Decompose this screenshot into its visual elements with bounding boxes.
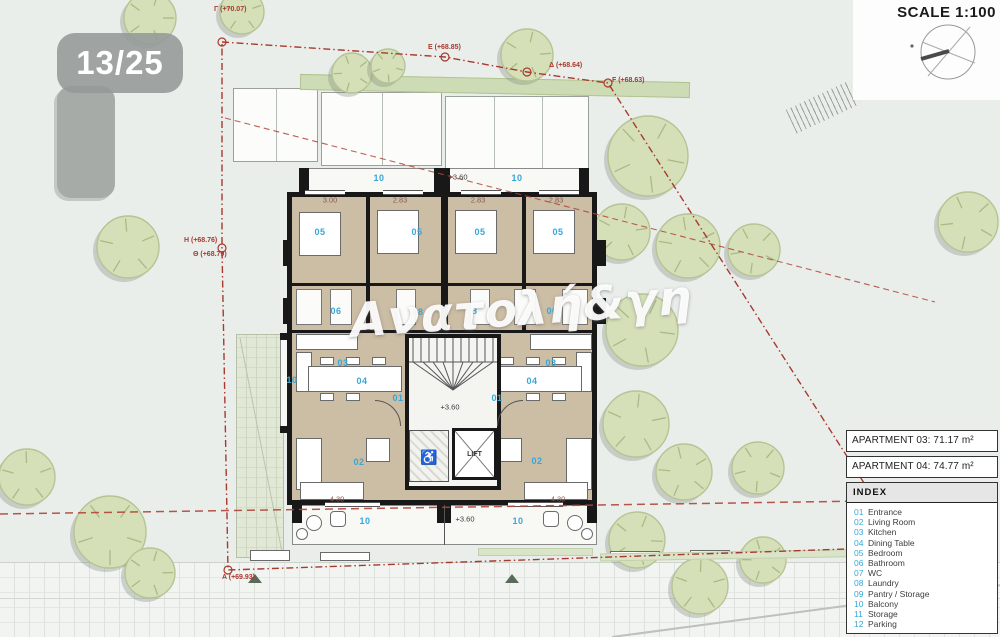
- neighbor-plot: [233, 88, 318, 162]
- bed: [377, 210, 419, 254]
- street-tree-icon: [505, 574, 519, 583]
- wall-stub: [579, 168, 589, 194]
- kitchen-counter: [530, 334, 592, 350]
- index-item-number: 05: [854, 548, 868, 558]
- street-tree-icon: [248, 574, 262, 583]
- tree: [608, 116, 688, 196]
- index-item-label: Dining Table: [868, 538, 915, 548]
- index-item: 06Bathroom: [854, 558, 997, 568]
- index-item-number: 10: [854, 599, 868, 609]
- index-item-label: Laundry: [868, 578, 899, 588]
- chair: [346, 393, 360, 401]
- pier: [283, 298, 292, 324]
- planting-strip: [478, 548, 593, 556]
- chair: [320, 357, 334, 365]
- index-item-label: Pantry / Storage: [868, 589, 929, 599]
- apartment-area-03: APARTMENT 03: 71.17 m²: [846, 430, 998, 452]
- bed: [455, 210, 497, 254]
- floor-plan-sheet: LIFT ♿ 050505050608080603030404010102021…: [0, 0, 1000, 637]
- index-item: 11Storage: [854, 609, 997, 619]
- index-item-label: Parking: [868, 619, 897, 629]
- index-item-number: 09: [854, 589, 868, 599]
- bathroom-fixture: [296, 289, 322, 325]
- armchair: [498, 438, 522, 462]
- scale-label: SCALE 1:100: [858, 4, 996, 21]
- index-item: 01Entrance: [854, 507, 997, 517]
- blabel: Δ (+68.64): [549, 62, 582, 69]
- neighbor-plot: [321, 92, 442, 166]
- planter: [320, 552, 370, 561]
- staircase: [409, 338, 497, 394]
- index-item: 05Bedroom: [854, 548, 997, 558]
- index-item-number: 02: [854, 517, 868, 527]
- balcony-table: [543, 511, 559, 527]
- legend-panel: APARTMENT 03: 71.17 m² APARTMENT 04: 74.…: [846, 430, 998, 634]
- index-item-number: 07: [854, 568, 868, 578]
- index-box: INDEX 01Entrance02Living Room03Kitchen04…: [846, 482, 998, 634]
- kitchen-counter: [296, 334, 358, 350]
- bed: [533, 210, 575, 254]
- apartment-area-04: APARTMENT 04: 74.77 m²: [846, 456, 998, 478]
- wall-stub: [292, 505, 302, 523]
- index-item-label: Balcony: [868, 599, 898, 609]
- wheelchair-icon: ♿: [409, 430, 449, 482]
- window: [383, 190, 423, 195]
- balcony-table: [330, 511, 346, 527]
- pier: [597, 240, 606, 266]
- window: [325, 502, 380, 507]
- tree: [938, 192, 998, 252]
- index-item: 03Kitchen: [854, 527, 997, 537]
- armchair: [366, 438, 390, 462]
- chair: [372, 357, 386, 365]
- bed: [299, 212, 341, 256]
- pier: [283, 240, 292, 266]
- index-item-number: 06: [854, 558, 868, 568]
- photo-counter-badge: 13/25: [57, 33, 183, 93]
- index-list: 01Entrance02Living Room03Kitchen04Dining…: [847, 503, 997, 633]
- index-title: INDEX: [847, 483, 997, 503]
- lift-label: LIFT: [455, 451, 494, 458]
- chair: [526, 357, 540, 365]
- chair: [552, 357, 566, 365]
- tree: [656, 214, 720, 278]
- window: [508, 502, 563, 507]
- index-item-number: 04: [854, 538, 868, 548]
- sofa: [300, 482, 364, 500]
- boundary-hatch: [786, 80, 860, 133]
- index-item-number: 03: [854, 527, 868, 537]
- index-item: 08Laundry: [854, 578, 997, 588]
- index-item-label: Living Room: [868, 517, 915, 527]
- index-item-label: WC: [868, 568, 882, 578]
- chair: [500, 357, 514, 365]
- tree: [732, 442, 784, 494]
- neighbor-plot: [445, 96, 589, 170]
- index-item: 12Parking: [854, 619, 997, 629]
- blabel: Θ (+68.79): [193, 251, 227, 258]
- balcony-chair: [296, 528, 308, 540]
- blabel: H (+68.76): [184, 237, 217, 244]
- lift-shaft: LIFT: [452, 428, 497, 480]
- window: [461, 190, 501, 195]
- balcony-chair: [567, 515, 583, 531]
- blabel: Γ (+70.07): [214, 6, 246, 13]
- balcony-divider: [444, 505, 445, 545]
- dining-table: [308, 366, 402, 392]
- garden: [236, 334, 284, 558]
- index-item-label: Kitchen: [868, 527, 896, 537]
- index-item-number: 11: [854, 609, 868, 619]
- tree: [0, 449, 55, 505]
- balcony-chair: [306, 515, 322, 531]
- tree: [220, 0, 264, 34]
- window: [305, 190, 345, 195]
- window: [539, 190, 579, 195]
- sofa: [524, 482, 588, 500]
- chair: [320, 393, 334, 401]
- index-item-number: 08: [854, 578, 868, 588]
- index-item-number: 12: [854, 619, 868, 629]
- index-item: 02Living Room: [854, 517, 997, 527]
- index-item-label: Storage: [868, 609, 898, 619]
- index-item: 10Balcony: [854, 599, 997, 609]
- chair: [552, 393, 566, 401]
- tree: [728, 224, 780, 276]
- tree: [74, 496, 146, 568]
- chair: [346, 357, 360, 365]
- index-item: 09Pantry / Storage: [854, 589, 997, 599]
- chair: [526, 393, 540, 401]
- dining-table: [488, 366, 582, 392]
- tree: [603, 391, 669, 457]
- blabel: E (+68.85): [428, 44, 461, 51]
- index-item: 04Dining Table: [854, 538, 997, 548]
- tree: [656, 444, 712, 500]
- index-item-label: Entrance: [868, 507, 902, 517]
- tree: [501, 29, 553, 81]
- index-item-number: 01: [854, 507, 868, 517]
- wall-stub: [587, 505, 597, 523]
- tree: [97, 216, 159, 278]
- street-tree-icon: [709, 574, 723, 583]
- wall-stub: [434, 168, 450, 194]
- index-item-label: Bathroom: [868, 558, 905, 568]
- balcony-chair: [581, 528, 593, 540]
- planter: [250, 550, 290, 561]
- neighbor-building: [57, 86, 115, 198]
- index-item-label: Bedroom: [868, 548, 903, 558]
- index-item: 07WC: [854, 568, 997, 578]
